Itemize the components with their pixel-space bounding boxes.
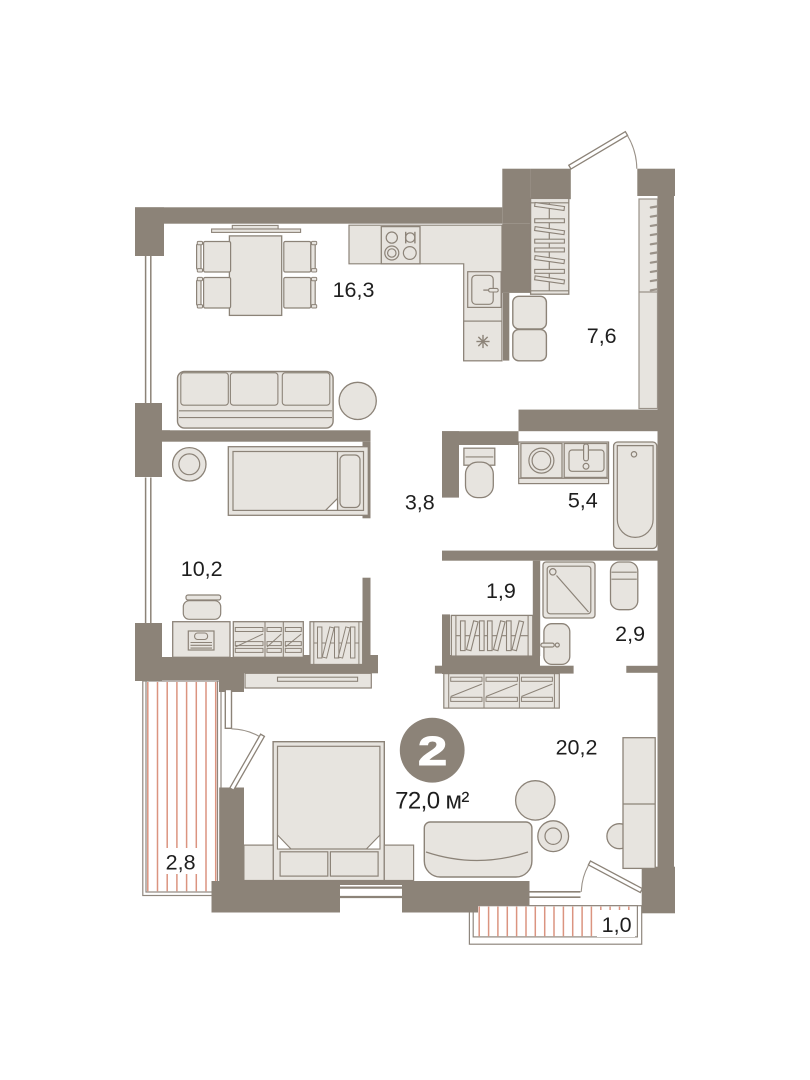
svg-text:3,8: 3,8 [405,491,435,515]
svg-text:5,4: 5,4 [568,489,598,513]
svg-text:2,9: 2,9 [615,622,645,646]
svg-text:16,3: 16,3 [333,278,375,302]
svg-text:2: 2 [418,728,447,774]
svg-text:1,0: 1,0 [602,913,632,937]
svg-text:1,9: 1,9 [486,579,516,603]
svg-text:72,0 м²: 72,0 м² [395,787,469,814]
svg-text:10,2: 10,2 [181,557,223,581]
svg-text:2,8: 2,8 [166,851,196,875]
svg-text:7,6: 7,6 [587,324,617,348]
svg-text:20,2: 20,2 [556,736,598,760]
